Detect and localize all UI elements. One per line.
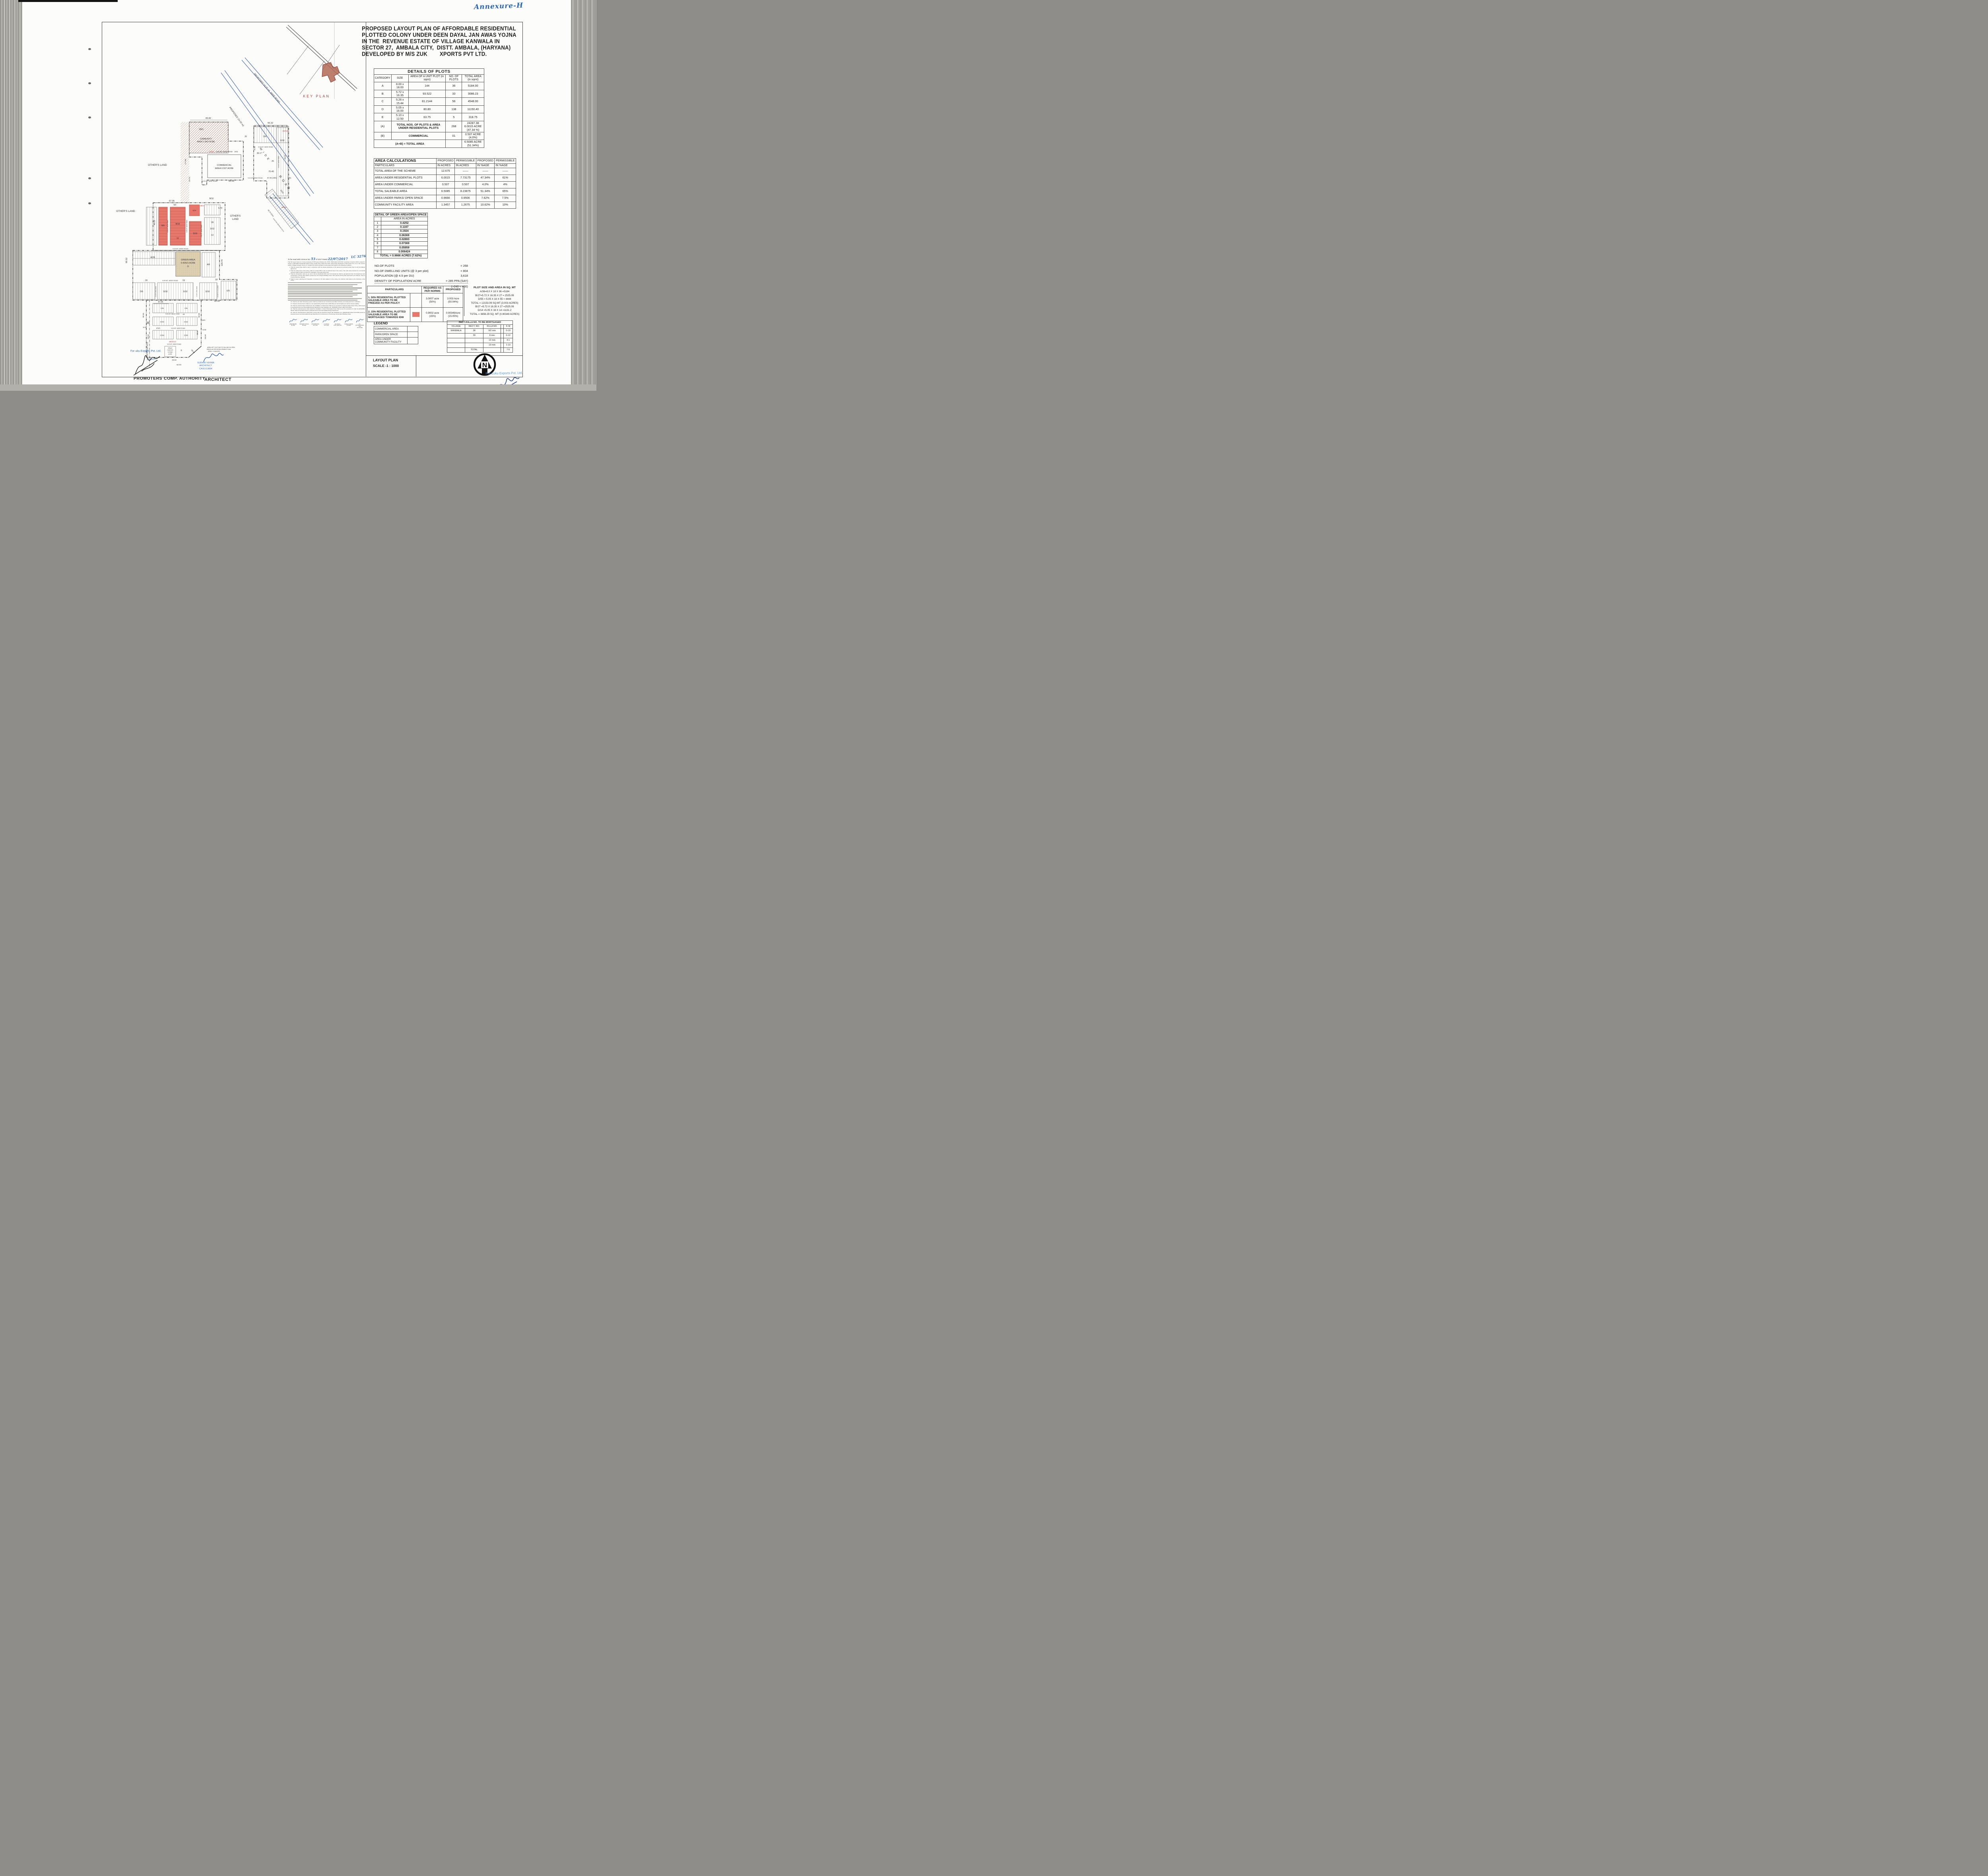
- plan-label: 9.00 MT. WIDE ROAD: [173, 248, 188, 250]
- plan-label: 9.00 MT. WIDE ROAD: [162, 279, 178, 281]
- plan-label: ②: [181, 349, 182, 352]
- cell: 0.02893: [381, 237, 427, 241]
- notes-intro: That this Layout plan for an area measur…: [288, 262, 365, 266]
- cell: AREA UNDER COMMERCIAL: [374, 182, 437, 188]
- plan-label: 49//2/1/2: [169, 341, 176, 343]
- cell: 80.80: [409, 105, 446, 113]
- cell: 0.1167: [381, 225, 427, 229]
- cell: 61%: [495, 175, 516, 182]
- green-area-total: TOTAL = 0.9666 ACRES (7.62%): [374, 254, 428, 258]
- plan-label: 83.82: [206, 117, 211, 120]
- architect-signature: [201, 351, 225, 363]
- cell: 8 min: [483, 333, 501, 338]
- cell: 0-19: [504, 328, 513, 333]
- plan-label: 62.03: [177, 364, 181, 366]
- approver-name: (T.L. SATYAPRAKASH, IAS): [355, 324, 365, 327]
- column-header: RECT. NO.: [465, 324, 483, 328]
- column-header: IN ACRES: [437, 164, 455, 168]
- cell: 5.26 x 15.44: [391, 98, 408, 106]
- cell: 5184.00: [462, 82, 484, 90]
- promoter-signature: [130, 351, 165, 377]
- cell: 0.06369: [381, 233, 427, 237]
- illegible-line: [288, 286, 353, 287]
- cell: 7: [374, 246, 381, 250]
- illegible-line: [288, 287, 362, 288]
- plan-label: 68.73 (41K): [267, 209, 274, 217]
- plan-label: 60.35: [198, 313, 200, 318]
- cell: COMMUNITY FACILITY AREA: [374, 202, 437, 209]
- approver-role: ASTP (SLM) HR: [332, 325, 343, 326]
- legend-swatch: [408, 326, 418, 332]
- plan-label: 36: [146, 321, 150, 325]
- table-row: A8.00 x 18.00144365184.00: [374, 82, 484, 90]
- comp-authority-label: COMP. AUTHORITY: [164, 376, 205, 381]
- cell: [447, 333, 465, 338]
- legend-label: COMMERCIAL AREA: [374, 326, 408, 332]
- footer-cell-divider: [416, 355, 416, 376]
- plan-label: 53.64: [147, 334, 149, 339]
- cell: 5.10 x 12.50: [391, 113, 408, 121]
- approver-signature-squiggle: [311, 318, 320, 324]
- plan-label: AREA LEFT OUT DUE TO FALLING IN OPEN: [207, 347, 235, 348]
- plan-label: 20: [145, 279, 148, 282]
- promoters-label: PROMOTERS: [134, 376, 162, 381]
- table-row: TOTAL AREA OF THE SCHEME12.675——————: [374, 168, 516, 175]
- plan-label: 9.00 MT. WIDE ROAD: [165, 313, 180, 315]
- approver: (OM PARKASH)ATP (HQ): [310, 318, 320, 328]
- area-calc-title: AREA CALCULATIONS: [374, 159, 437, 164]
- plan-label: OTHER'S LAND: [116, 210, 135, 213]
- cell: 7-5: [504, 347, 513, 352]
- plan-label: 9.00 MT. WIDE ROAD: [201, 225, 202, 237]
- table-row: 50.02893: [374, 237, 428, 241]
- cell: 144: [409, 82, 446, 90]
- plan-label: B/9: [161, 225, 165, 227]
- plan-label: 5.03: [143, 326, 147, 328]
- cell: [501, 333, 504, 338]
- table-row: 70.05959: [374, 246, 428, 250]
- table-row: D5.05 x 16.0080.8013811150.40: [374, 105, 484, 113]
- plan-label: D/6: [263, 136, 266, 138]
- cell: 4: [374, 233, 381, 237]
- cell: [447, 347, 465, 352]
- cell: 3086.23: [462, 90, 484, 98]
- layout-plan-cell: LAYOUT PLAN SCALE -1 : 1000: [373, 358, 413, 368]
- table-row: 20.1167: [374, 225, 428, 229]
- plot-size-line: B/27 =5.72 X 16.35 X 27 =2525.09: [466, 305, 524, 308]
- column-header: REQUIRED AS PER NORMS: [422, 286, 443, 293]
- cell: 268: [446, 121, 462, 132]
- stat-label: NO.OF DWELLING UNITS (@ 3 per plot): [375, 269, 429, 273]
- legend-label: PARK/OPEN SPACE: [374, 332, 408, 338]
- condition: 19. That the colonizer/owner shall ensur…: [291, 308, 365, 312]
- plan-label: C/12: [160, 321, 164, 323]
- plan-label: 0.42521 ACRE: [181, 262, 196, 264]
- plan-label: LAND: [232, 218, 239, 221]
- cell: 9/2 min: [483, 328, 501, 333]
- approval-notes: To be read with Licence No. 53 of 2017 D…: [288, 257, 365, 328]
- cell: 0.4252: [381, 221, 427, 225]
- approver: (V. SINGH)DTP (HQ): [321, 318, 332, 328]
- condition: That the plotted area of the colony shal…: [291, 270, 365, 274]
- cell: 7.62%: [476, 195, 495, 202]
- plan-label: 9.0 MT. WIDE ROAD: [155, 286, 157, 297]
- cell: 10.62%: [476, 202, 495, 209]
- table-row: C5.26 x 15.4481.2144564548.00: [374, 98, 484, 106]
- plan-label: AREA 1.3457 ACRE: [197, 141, 215, 143]
- cell: 6: [374, 242, 381, 246]
- cell: TOTAL AREA OF THE SCHEME: [374, 168, 437, 175]
- cell: 6.5085 ACRE(51.34%): [462, 140, 484, 148]
- cell: C: [374, 98, 392, 106]
- cell: 10%: [495, 202, 516, 209]
- plan-label: C/10: [160, 334, 164, 336]
- title-block: PROPOSED LAYOUT PLAN OF AFFORDABLE RESID…: [362, 25, 501, 57]
- cell: 0.507: [437, 182, 455, 188]
- table-row: TOTAL SALEABLE AREA6.50858.2387551.34%65…: [374, 188, 516, 195]
- plan-label: COMMERCIAL: [217, 164, 231, 167]
- plan-label: 22: [182, 313, 185, 315]
- cell: 1-13: [504, 343, 513, 347]
- table-row: KANWALA389/2 min0-19: [447, 328, 513, 333]
- plan-label: B/10: [210, 198, 214, 200]
- approver: (T.L. SATYAPRAKASH, IAS)DTCP (HR): [355, 318, 365, 328]
- column-header: NO. OF PLOTS: [446, 75, 462, 82]
- cell: ——: [455, 168, 476, 175]
- footer-divider: [366, 355, 522, 356]
- plan-label: 9.00 MT. WIDE ROAD: [202, 180, 217, 182]
- cell: TOTAL: [465, 347, 483, 352]
- table-row: 10.4252: [374, 221, 428, 225]
- approver-signature-squiggle: [344, 318, 353, 324]
- cell: 8.23875: [455, 188, 476, 195]
- cell: 38: [465, 328, 483, 333]
- punch-hole: [88, 116, 91, 118]
- column-divider: [366, 22, 366, 376]
- plan-label: 19: [182, 279, 185, 282]
- cell: 12.675: [437, 168, 455, 175]
- cell: 4548.00: [462, 98, 484, 106]
- cell: COMMERCIAL: [391, 132, 446, 140]
- column-header: IN %AGE: [476, 164, 495, 168]
- plan-label: SPACE AS PER DEVELOPMENT PLAN: [207, 349, 231, 350]
- plan-label: 0.07462: [168, 351, 173, 353]
- plan-label: 67.05: [158, 301, 163, 303]
- plan-label: 55.32: [284, 155, 286, 159]
- plan-label: D/10: [183, 291, 188, 293]
- plot-size-line: B/27=5.72 X 16.35 X 27 = 2525.09: [466, 294, 524, 297]
- svg-text:N: N: [482, 361, 487, 369]
- cell: [447, 343, 465, 347]
- swatch-cell: [410, 293, 422, 308]
- cell: B: [374, 90, 392, 98]
- cell: 0.1924: [381, 229, 427, 233]
- total-row: (A)TOTAL NOS. OF PLOTS & AREA UNDER RESI…: [374, 121, 484, 132]
- plan-label: 6.70: [218, 207, 222, 210]
- punch-hole: [88, 48, 91, 50]
- column-header: AREA OF A UNIT PLOT (in sqmt): [409, 75, 446, 82]
- stat-value: = 285 PPA (SAY): [446, 279, 468, 283]
- stat-label: DENSITY OF POPULATION/ ACRE: [375, 279, 421, 283]
- cell: [501, 347, 504, 352]
- cell: 36: [446, 82, 462, 90]
- plan-label: 9.00 MT. WIDE ROAD: [248, 177, 263, 179]
- cell: D: [374, 105, 392, 113]
- cell: ——: [476, 168, 495, 175]
- cell: 0.05959: [381, 246, 427, 250]
- illegible-line: [288, 298, 362, 299]
- plan-label: 2/1/1: [156, 327, 161, 329]
- plan-label: 30.17: [257, 152, 262, 155]
- approver-signature-squiggle: [322, 318, 331, 324]
- cell: 0.9666: [437, 195, 455, 202]
- cell: [501, 343, 504, 347]
- plan-label: 9.00 MT. WIDE ROAD: [216, 151, 232, 153]
- cell: 0-12: [504, 333, 513, 338]
- approver-role: DTCP (HR): [355, 327, 365, 328]
- plan-label: 9.00 MT. WIDE ROAD: [167, 343, 181, 345]
- cell: 39: [465, 333, 483, 338]
- legend-row: COMMERCIAL AREA: [374, 326, 418, 332]
- stat-row: DENSITY OF POPULATION/ ACRE= 285 PPA (SA…: [375, 279, 468, 283]
- plan-label: 38.64: [196, 330, 198, 335]
- table-row: 12 min4-1: [447, 338, 513, 343]
- lc-number-handwritten: LC 3276: [351, 254, 366, 259]
- plan-label: D/10: [193, 210, 197, 211]
- cell: 12 min: [483, 338, 501, 343]
- legend-swatch: [408, 332, 418, 338]
- column-header: [501, 324, 504, 328]
- cell: 33: [446, 90, 462, 98]
- cell: 1: [374, 221, 381, 225]
- cell: 6.5085: [437, 188, 455, 195]
- plan-label: COMMUNITY: [200, 138, 212, 140]
- plan-label: OTHER'S: [230, 215, 241, 217]
- table-row: 80.006424: [374, 250, 428, 254]
- plan-label: C/12: [184, 321, 188, 323]
- plan-label: 9/2: [174, 204, 177, 206]
- cell: A: [374, 82, 392, 90]
- plan-label: 13: [211, 234, 214, 237]
- cell: 6.0015: [437, 175, 455, 182]
- cell: [465, 338, 483, 343]
- condition: That the demarcation plans as per site o…: [291, 274, 365, 278]
- cell: 3: [374, 229, 381, 233]
- plan-label: 9.00 MT. W I D E ROAD: [217, 285, 219, 297]
- approver: (B. SINGH)ASTP (SLM) HR: [332, 318, 343, 328]
- plan-label: 60.35: [229, 180, 234, 182]
- plan-label: ACRE: [168, 353, 172, 355]
- plan-label: 34//23: [209, 151, 214, 153]
- plan-label: (3K): [288, 177, 291, 179]
- total-row: (B)COMMERCIAL010.507 ACRE(4.0%): [374, 132, 484, 140]
- plan-label: 26: [245, 136, 247, 138]
- cell: 47.34%: [476, 175, 495, 182]
- plan-label: 43.62: [172, 359, 177, 361]
- stat-row: NO.OF PLOTS= 268: [375, 264, 468, 268]
- table-row: E5.10 x 12.5063.755318.75: [374, 113, 484, 121]
- cell: 13 min: [483, 343, 501, 347]
- punch-hole: [88, 82, 91, 84]
- illegible-line: [288, 300, 357, 301]
- plan-label: 5.03: [203, 329, 206, 331]
- cell: 4-1: [504, 338, 513, 343]
- plan-label: 55.32: [268, 122, 273, 124]
- scanner-edge-bottom: [0, 384, 596, 391]
- killa-table: RECT./KILLA NO. TO BE MORTGAGED VILLAGER…: [447, 320, 513, 353]
- illegible-line: [288, 293, 362, 293]
- particulars-table: PARTICULARSREQUIRED AS PER NORMSPROPOSED…: [367, 286, 463, 322]
- stat-value: = 268: [460, 264, 468, 268]
- cell: 56: [446, 98, 462, 106]
- cell: [483, 347, 501, 352]
- cell: [501, 338, 504, 343]
- row-text: 15% RESIDENTIAL PLOTTED SALEABLE AREA TO…: [368, 310, 406, 319]
- table-row: 60.07369: [374, 242, 428, 246]
- cell: (B): [374, 132, 392, 140]
- cell: 3.003 Acre (50.04%): [443, 293, 463, 308]
- cell: 8.00 x 18.00: [391, 82, 408, 90]
- plan-label: 23/1: [202, 319, 206, 321]
- licence-no-handwritten: 53: [311, 257, 315, 261]
- cell: 138: [446, 105, 462, 113]
- cell: [446, 140, 462, 148]
- plan-label: 53.64: [204, 334, 206, 339]
- plan-label: 39//5/2: [282, 206, 287, 208]
- table-row: AREA UNDER RESIDENTIAL PLOTS6.00157.7317…: [374, 175, 516, 182]
- mortgage-swatch: [412, 312, 419, 317]
- cell: 3.0007 acre (50%): [422, 293, 443, 308]
- plan-label: 120.70: [221, 260, 223, 266]
- title-line: DEVELOPED BY M/S ZUK XPORTS PVT LTD.: [362, 50, 501, 58]
- plot-size-line: TOTAL = 12153.09 SQ.MT (3.003 ACRES): [466, 301, 524, 305]
- plan-label: 39//3: [200, 205, 204, 207]
- cell: 318.75: [462, 113, 484, 121]
- table-row: 1. 50% RESIDENTIAL PLOTTED SALEABLE AREA…: [367, 293, 463, 308]
- cell: KANWALA: [447, 328, 465, 333]
- stat-value: 3,618: [461, 274, 468, 277]
- plot-size-line: D/14 =5.05 X 16 X 14 =1131.2: [466, 308, 524, 312]
- cell: 0.9506: [455, 195, 476, 202]
- scanned-sheet: Annexure-H: [0, 0, 596, 391]
- plan-label: OTHER'S LAND: [148, 164, 167, 167]
- condition: That this Layout Plan shall be read in c…: [291, 267, 365, 270]
- cell: 2. 15% RESIDENTIAL PLOTTED SALEABLE AREA…: [367, 308, 410, 322]
- table-row: AREA UNDER COMMERCIAL0.5070.5074.0%4%: [374, 182, 516, 188]
- cell: [447, 338, 465, 343]
- plan-label: 18/1: [199, 128, 204, 131]
- table-row: 398 min0-12: [447, 333, 513, 338]
- table-row: B5.72 x 16.3593.522333086.23: [374, 90, 484, 98]
- cell: TOTAL NOS. OF PLOTS & AREA UNDER RESIDEN…: [391, 121, 446, 132]
- condition: 18. That the colonizer/owner shall ensur…: [291, 305, 365, 308]
- plan-label: AREA 0.507 ACRE: [215, 167, 234, 170]
- plan-label: D/10: [280, 140, 285, 142]
- stat-row: POPULATION (@ 4.5 per DU)3,618: [375, 274, 468, 277]
- illegible-line: [288, 295, 357, 295]
- plan-label: D/5: [140, 291, 143, 293]
- illegible-line: [288, 284, 357, 285]
- legend-row: PARK/OPEN SPACE: [374, 332, 418, 338]
- legend-row: AREA UNDER COMMUNITY FACILITY: [374, 338, 418, 344]
- plan-label: C/10: [184, 334, 188, 336]
- swatch-cell: [410, 308, 422, 322]
- cell: 4.0%: [476, 182, 495, 188]
- table-row: COMMUNITY FACILITY AREA1.34571.267510.62…: [374, 202, 516, 209]
- green-area-table: DETAIL OF GREEN AREA/OPEN SPACE AREA IN …: [374, 213, 428, 258]
- stat-value: = 804: [460, 269, 468, 273]
- plan-label: 25: [272, 160, 274, 163]
- plan-label: 9.00 MT. WIDE ROAD: [186, 220, 188, 233]
- cell: 81.2144: [409, 98, 446, 106]
- plot-size-line: TOTAL = 3656.29 SQ. MT (0.90349 ACRES): [466, 312, 524, 316]
- area-line: (47.34 %): [463, 128, 483, 132]
- cell: 5: [446, 113, 462, 121]
- architect-label: ARCHITECT: [204, 377, 231, 382]
- stat-label: POPULATION (@ 4.5 per DU): [375, 274, 414, 277]
- cell: 5.72 x 16.35: [391, 90, 408, 98]
- plan-label: EXISTING REVENUE RASTA: [273, 218, 285, 233]
- table-row: 40.06369: [374, 233, 428, 237]
- approver-signature-squiggle: [333, 318, 342, 324]
- plan-label: 39: [211, 221, 214, 224]
- plan-label: B/18: [176, 223, 180, 225]
- table-row: AREA UNDER PARKS/ OPEN SPACE0.96660.9506…: [374, 195, 516, 202]
- cell: 0.90349Acre (15.05%): [443, 308, 463, 322]
- plan-label: A/28: [150, 256, 155, 259]
- plan-label: 31.85: [254, 146, 256, 150]
- plan-label: 70.40: [268, 171, 274, 173]
- table-row: 30.1924: [374, 229, 428, 233]
- plan-label: 9.00 MT. WIDE ROAD: [167, 220, 169, 233]
- plan-label: 12: [177, 237, 179, 240]
- row-number: 2.: [368, 310, 371, 313]
- cell: 1. 50% RESIDENTIAL PLOTTED SALEABLE AREA…: [367, 293, 410, 308]
- cell: 24287.386.0015 ACRE(47.34 %): [462, 121, 484, 132]
- cell: 93.522: [409, 90, 446, 98]
- plan-label: ①: [187, 265, 189, 268]
- plan-label: D/10: [163, 291, 168, 293]
- legend-label: AREA UNDER COMMUNITY FACILITY: [374, 338, 408, 344]
- cell: 2: [374, 225, 381, 229]
- plan-label: 90.52: [126, 258, 128, 263]
- plan-label: 120.02: [188, 177, 190, 182]
- cell: 1.2675: [455, 202, 476, 209]
- plan-label: A/8: [207, 264, 210, 266]
- plan-label: 60.35: [142, 313, 144, 318]
- approver-role: SD (HQ): [299, 325, 309, 326]
- cell: 63.75: [409, 113, 446, 121]
- cell: (A): [374, 121, 392, 132]
- condition: 20. That the colonizer/owner shall stric…: [291, 312, 365, 315]
- approver-signature-squiggle: [355, 318, 364, 324]
- cell: 0.507: [455, 182, 476, 188]
- cell: E: [374, 113, 392, 121]
- cell: 5: [374, 237, 381, 241]
- plan-label: D/10: [193, 233, 198, 235]
- approver-signature-squiggle: [289, 318, 297, 324]
- plot-size-block: PLOT SIZE AND AREA IN SQ. MT A/36=8.0 X …: [464, 286, 524, 316]
- plan-label: 67.05 (40K): [267, 177, 277, 179]
- approver-role: DTP (HQ): [321, 325, 332, 326]
- punch-hole: [88, 177, 91, 179]
- cell: 7.5%: [495, 195, 516, 202]
- plan-label: 18: [215, 279, 217, 281]
- column-header: IN %AGE: [495, 164, 516, 168]
- column-header: K-M: [504, 324, 513, 328]
- column-header: PROPOSED: [443, 286, 463, 293]
- table-row: 13 min1-13: [447, 343, 513, 347]
